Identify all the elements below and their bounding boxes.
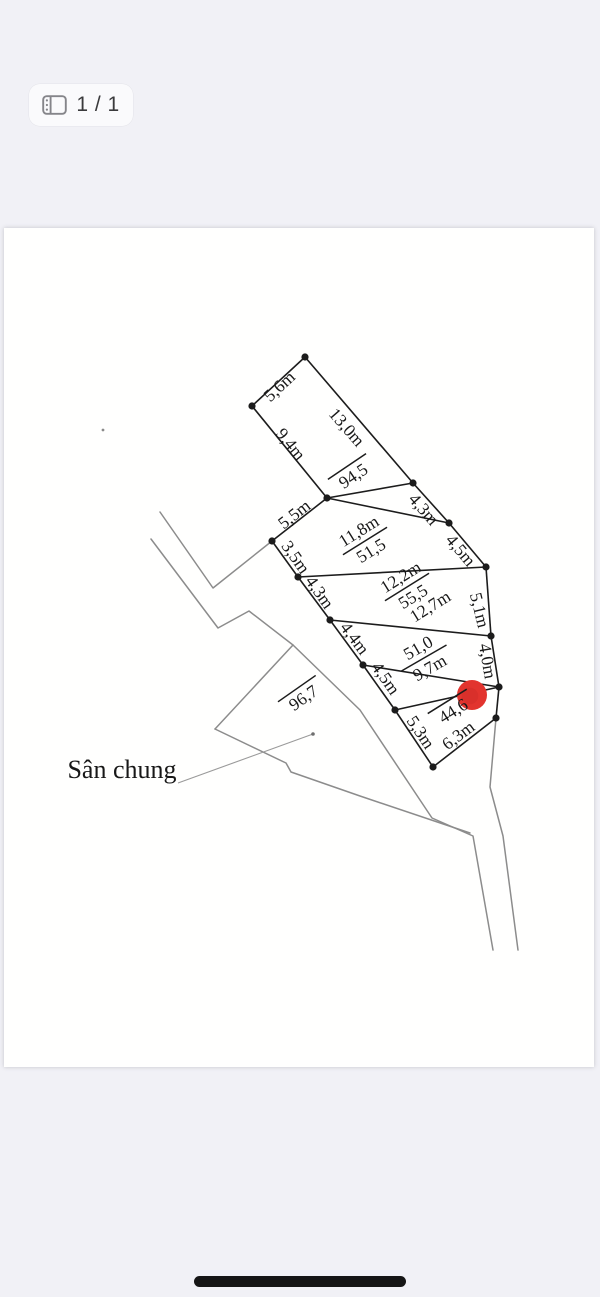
- dimension-label: 4,0m: [475, 642, 501, 681]
- area-label: 96,7: [278, 675, 328, 719]
- dimension-label: 4,5m: [442, 530, 480, 570]
- vertex-dot: [495, 683, 502, 690]
- dimension-label: 4,3m: [302, 572, 339, 613]
- road-line: [490, 718, 518, 950]
- leader-end-dot: [311, 732, 315, 736]
- area-label-text: 96,7: [285, 681, 322, 715]
- vertex-dot: [482, 563, 489, 570]
- vertex-dot: [359, 661, 366, 668]
- road-line: [215, 645, 293, 729]
- area-label: 51,09,7m: [390, 626, 457, 689]
- parcel-edge: [327, 483, 413, 498]
- dimension-label: 5,6m: [259, 366, 299, 405]
- parcel-edge: [496, 687, 499, 718]
- stray-speck: [102, 429, 105, 432]
- vertex-dot: [326, 616, 333, 623]
- vertex-dot: [391, 706, 398, 713]
- dimension-label: 5,1m: [466, 590, 494, 630]
- vertex-dot: [492, 714, 499, 721]
- vertex-dot: [323, 494, 330, 501]
- vertex-dot: [409, 479, 416, 486]
- leader-line: [178, 734, 313, 783]
- vertex-dot: [248, 402, 255, 409]
- dimension-label: 13,0m: [325, 404, 369, 451]
- area-label-text: 94,5: [335, 459, 372, 493]
- yard-note: Sân chung: [67, 755, 176, 784]
- dimension-label: 9,4m: [272, 424, 310, 464]
- dimension-label: 5,3m: [403, 712, 440, 753]
- dimension-label: 5,5m: [274, 495, 315, 533]
- survey-drawing: 5,6m9,4m13,0m5,5m4,3m3,5m4,5m4,3m5,1m4,4…: [0, 0, 600, 1297]
- dimension-label: 4,3m: [405, 489, 444, 529]
- vertex-dot: [429, 763, 436, 770]
- road-line: [160, 512, 272, 588]
- vertex-dot: [487, 632, 494, 639]
- home-indicator[interactable]: [194, 1276, 406, 1287]
- screen-background: 1 / 1 5,6m9,4m13,0m5,5m4,3m3,5m4,5m4,3m5…: [0, 0, 600, 1297]
- vertex-dot: [301, 353, 308, 360]
- vertex-dot: [445, 519, 452, 526]
- vertex-dot: [268, 537, 275, 544]
- area-label: 11,8m51,5: [331, 509, 398, 573]
